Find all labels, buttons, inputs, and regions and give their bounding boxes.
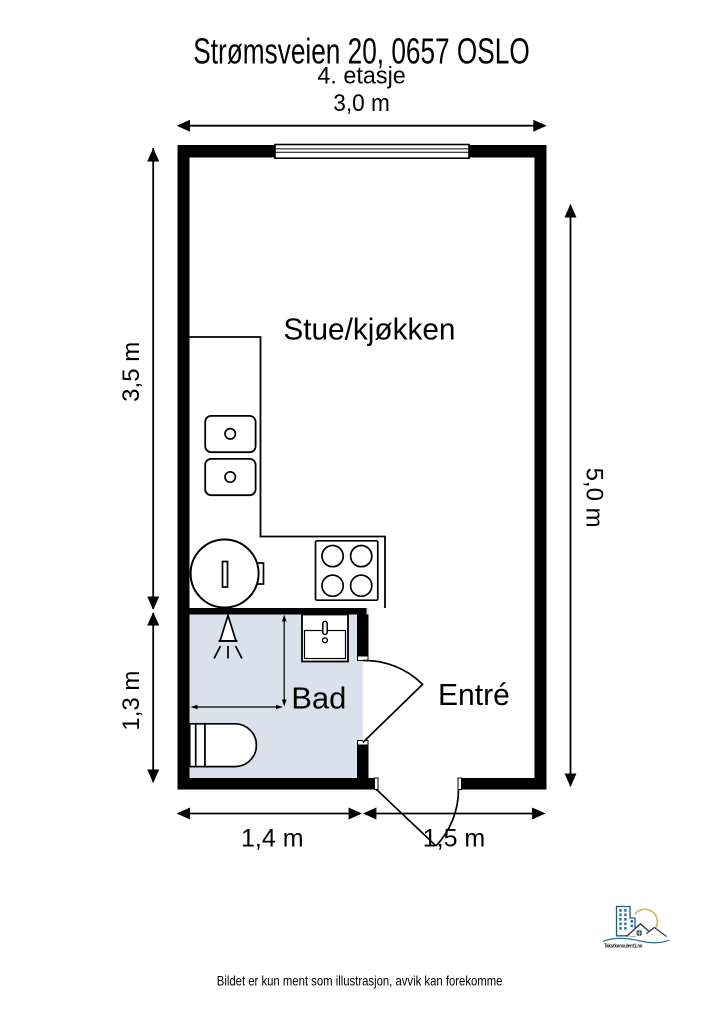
svg-text:4. etasje: 4. etasje	[317, 63, 405, 89]
svg-text:Entré: Entré	[438, 677, 510, 712]
svg-text:Takstkonsulent1.no: Takstkonsulent1.no	[604, 943, 642, 950]
svg-text:1,3 m: 1,3 m	[118, 671, 145, 731]
svg-text:Bildet er kun ment som illustr: Bildet er kun ment som illustrasjon, avv…	[217, 973, 503, 989]
svg-text:Bad: Bad	[291, 681, 346, 716]
svg-text:3,0 m: 3,0 m	[333, 89, 390, 116]
svg-text:5,0 m: 5,0 m	[581, 468, 608, 528]
svg-text:3,5 m: 3,5 m	[118, 342, 145, 402]
svg-text:1,5 m: 1,5 m	[423, 825, 486, 853]
svg-text:1,4 m: 1,4 m	[241, 825, 304, 853]
svg-text:Stue/kjøkken: Stue/kjøkken	[283, 312, 455, 347]
